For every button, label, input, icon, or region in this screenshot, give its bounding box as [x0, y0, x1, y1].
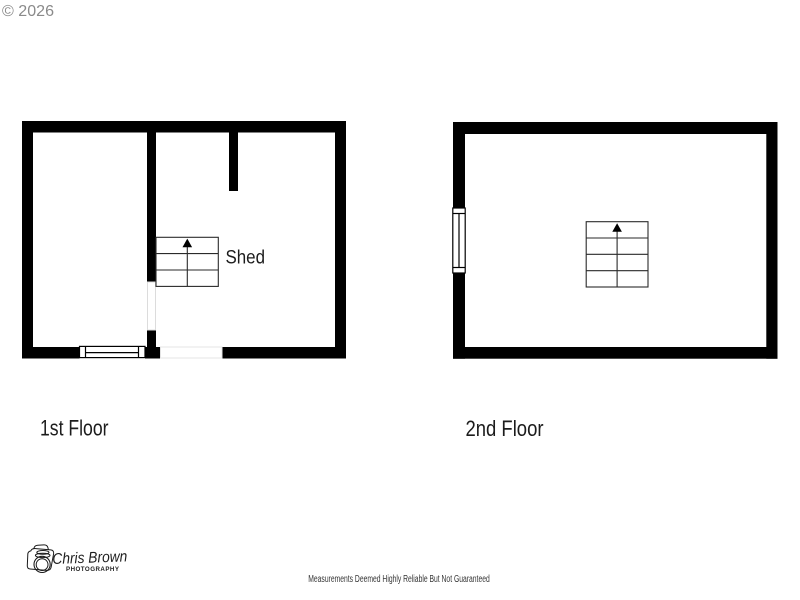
svg-text:Measurements Deemed Highly Rel: Measurements Deemed Highly Reliable But … — [308, 574, 490, 585]
svg-text:1st Floor: 1st Floor — [40, 416, 109, 441]
svg-text:Shed: Shed — [226, 246, 266, 268]
svg-text:© 2026: © 2026 — [2, 3, 54, 20]
svg-text:PHOTOGRAPHY: PHOTOGRAPHY — [66, 566, 121, 573]
svg-text:2nd Floor: 2nd Floor — [466, 416, 544, 441]
